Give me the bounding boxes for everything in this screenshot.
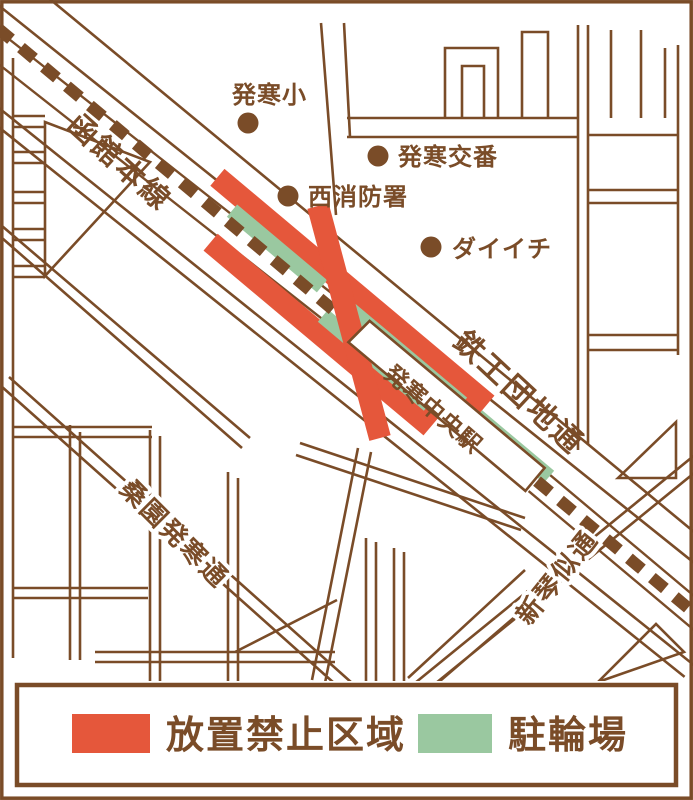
police-box-label: 発寒交番 [397, 143, 498, 171]
area-map: 発寒小 発寒交番 西消防署 ダイイチ 函館本線 鉄工団地通 発寒中央駅 桑園発寒… [0, 0, 693, 800]
fire-station-label: 西消防署 [308, 183, 408, 211]
legend: 放置禁止区域 駐輪場 [0, 681, 693, 800]
school-label: 発寒小 [231, 81, 307, 109]
bicycle-parking-swatch [418, 714, 492, 753]
no-parking-swatch [72, 714, 150, 753]
map-page: 発寒小 発寒交番 西消防署 ダイイチ 函館本線 鉄工団地通 発寒中央駅 桑園発寒… [0, 0, 693, 800]
bicycle-parking-legend-label: 駐輪場 [508, 715, 628, 757]
daiichi-dot [421, 237, 442, 258]
fire-station-dot [278, 186, 299, 207]
school-dot [238, 113, 259, 134]
no-parking-legend-label: 放置禁止区域 [166, 715, 406, 757]
police-box-dot [368, 146, 389, 167]
daiichi-label: ダイイチ [452, 235, 552, 263]
